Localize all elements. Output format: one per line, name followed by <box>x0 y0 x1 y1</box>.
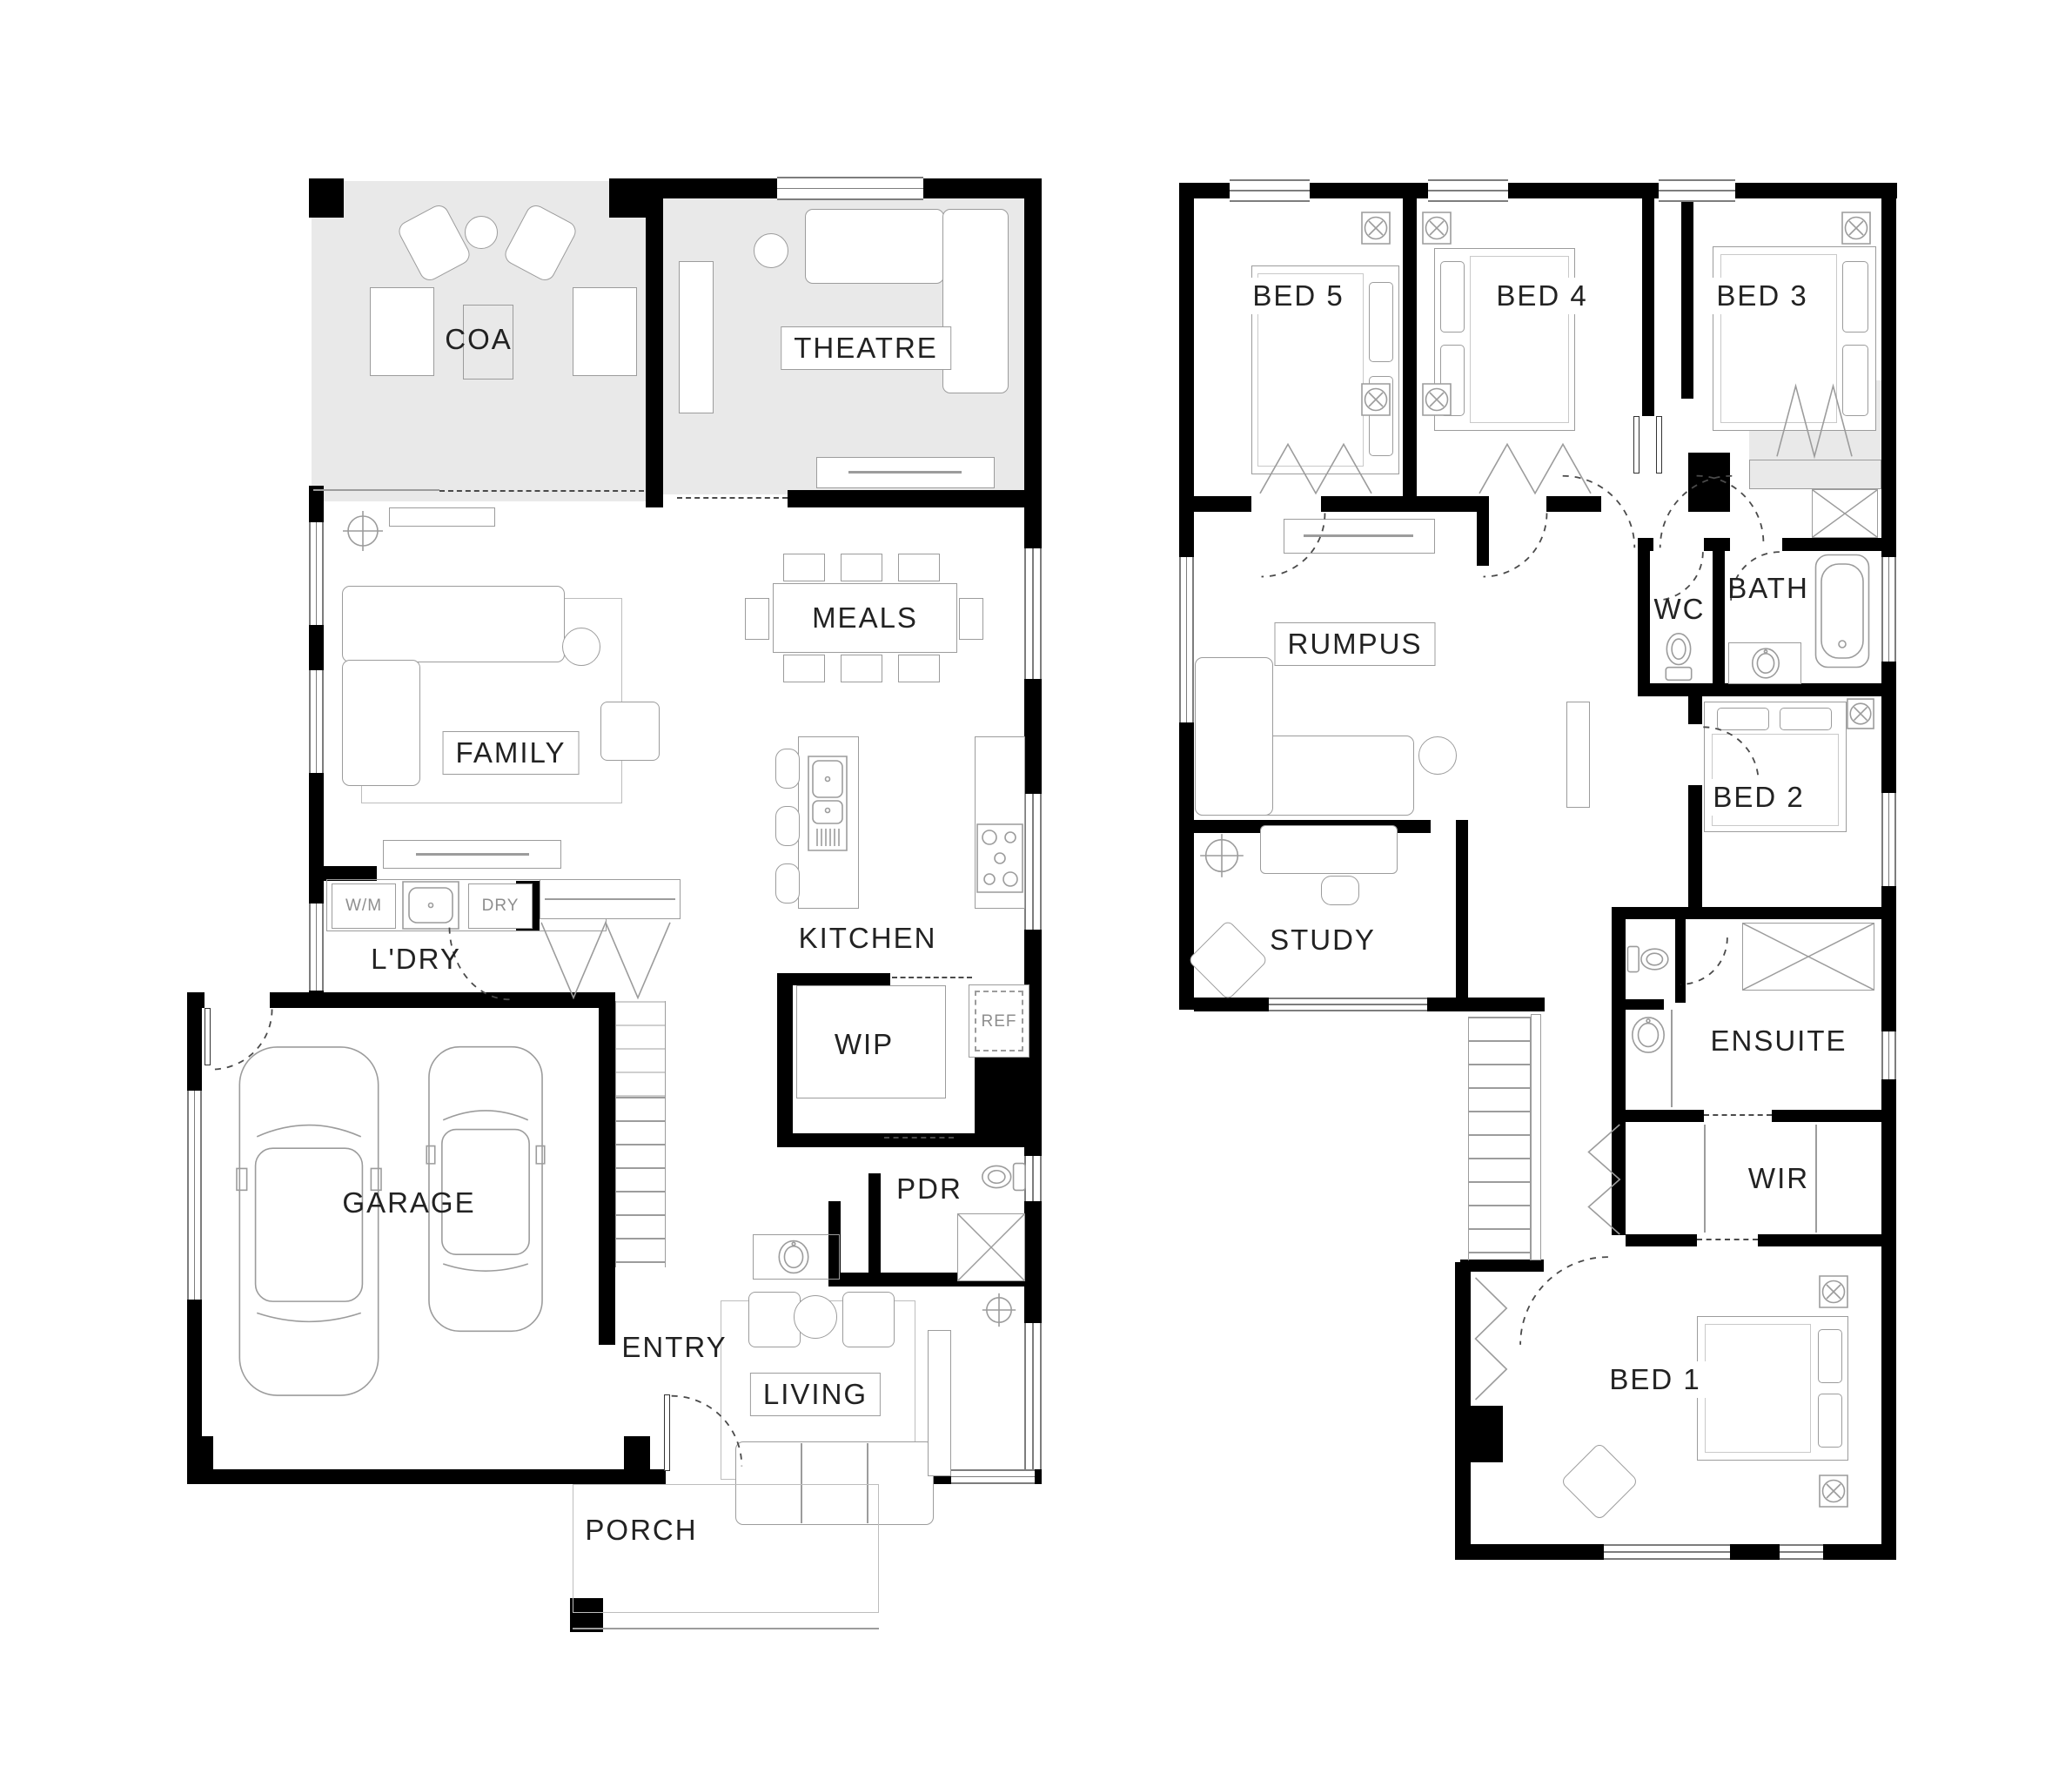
opening-dashed <box>884 1137 954 1139</box>
dining-chair <box>841 554 882 581</box>
opening-dashed <box>892 977 972 978</box>
side-table <box>754 233 788 268</box>
room-label-bed1: BED 1 <box>1602 1361 1707 1398</box>
wall <box>1024 178 1042 507</box>
room-label-bed2: BED 2 <box>1706 779 1811 816</box>
window <box>1230 179 1310 202</box>
theatre-chaise <box>942 209 1009 393</box>
armchair <box>1560 1442 1639 1522</box>
kitchen-sink-icon <box>808 756 848 851</box>
room-label-living: LIVING <box>750 1373 881 1416</box>
wall <box>1403 198 1417 496</box>
wall <box>1688 696 1702 724</box>
laundry-sink-icon <box>402 881 459 930</box>
room-label-bed5: BED 5 <box>1245 278 1351 314</box>
window <box>1659 179 1735 202</box>
armchair <box>748 1292 801 1347</box>
ceiling-fan-icon <box>1819 1475 1848 1508</box>
wall <box>1612 1110 1704 1122</box>
armchair <box>842 1292 895 1347</box>
wall <box>609 178 646 218</box>
door-swing-arc <box>670 1394 743 1468</box>
door-leaf <box>1633 416 1639 474</box>
armchair <box>573 287 637 376</box>
side-table <box>1418 736 1457 775</box>
window <box>1024 548 1042 679</box>
wall <box>187 1436 213 1484</box>
wall <box>1642 198 1654 416</box>
family-sofa-chaise <box>342 660 420 786</box>
wall <box>1782 538 1881 551</box>
door-leaf <box>1656 416 1662 474</box>
cavity-slider-dashed <box>677 497 788 499</box>
dining-chair <box>745 598 769 640</box>
floor-plan-sheet: COA THEATRE MEALS FAMILY L'DRY KITCHEN W… <box>0 0 2072 1787</box>
desk <box>1260 825 1398 874</box>
wall <box>1455 1406 1503 1462</box>
bed <box>1434 248 1575 431</box>
wall <box>1194 496 1251 512</box>
wall <box>1713 551 1725 688</box>
front-door-leaf <box>664 1394 670 1471</box>
wall <box>187 1469 650 1484</box>
room-label-wc: WC <box>1654 593 1706 626</box>
room-label-wip: WIP <box>835 1028 894 1061</box>
wall <box>1612 907 1881 919</box>
porch-step <box>573 1628 879 1629</box>
bar-stool <box>775 749 800 789</box>
cavity-slider-dashed <box>439 490 644 492</box>
window <box>1604 1544 1730 1560</box>
door-swing-arc <box>1680 937 1728 985</box>
wall <box>1758 1234 1881 1246</box>
window <box>1881 793 1896 886</box>
wall <box>648 1469 666 1484</box>
staircase <box>615 1097 666 1267</box>
ceiling-light-icon <box>982 1292 1016 1328</box>
sideboard <box>389 507 495 527</box>
wall <box>1638 683 1896 696</box>
door-swing-arc <box>1482 512 1548 578</box>
room-label-porch: PORCH <box>585 1514 697 1547</box>
window <box>951 1469 1035 1484</box>
window <box>187 1091 202 1300</box>
window <box>1881 1031 1896 1079</box>
wall <box>975 1053 1040 1136</box>
wall <box>868 1173 881 1281</box>
cooktop-icon <box>976 823 1023 893</box>
appliance-label-wm: W/M <box>345 897 382 916</box>
wall <box>1638 538 1650 696</box>
bifold-robe-doors-icon <box>541 921 670 1001</box>
window <box>309 670 324 773</box>
room-label-wir: WIR <box>1748 1162 1809 1195</box>
window <box>1780 1544 1823 1560</box>
car-icon <box>237 1043 381 1400</box>
family-sofa <box>342 586 565 662</box>
door-swing-arc <box>1260 512 1326 578</box>
garage-door-leaf <box>205 1008 211 1065</box>
wall <box>777 973 793 1140</box>
room-label-entry: ENTRY <box>621 1331 727 1364</box>
room-label-bed3: BED 3 <box>1709 278 1814 314</box>
wall <box>624 1436 650 1484</box>
soundbar <box>848 471 962 474</box>
soundbar <box>416 853 529 856</box>
dining-chair <box>841 655 882 682</box>
dining-chair <box>898 655 940 682</box>
room-label-bed4: BED 4 <box>1489 278 1594 314</box>
window <box>309 522 324 625</box>
room-label-bath: BATH <box>1727 572 1809 605</box>
dining-chair <box>898 554 940 581</box>
basin-icon <box>773 1238 815 1276</box>
rumpus-sofa-chaise <box>1195 657 1273 816</box>
door-swing-arc <box>1519 1255 1610 1347</box>
room-label-garage: GARAGE <box>342 1186 475 1219</box>
bed <box>1697 1316 1848 1461</box>
opening-dashed <box>1697 1239 1758 1240</box>
porch-outline <box>573 1484 879 1613</box>
side-table <box>562 628 600 666</box>
staircase <box>1468 1017 1531 1260</box>
toilet-icon <box>1624 942 1674 977</box>
wall <box>1456 820 1468 1010</box>
basin-icon <box>1629 1013 1667 1057</box>
dining-chair <box>783 655 825 682</box>
tv-cabinet <box>928 1330 951 1476</box>
wall <box>788 490 1042 507</box>
window <box>1428 179 1508 202</box>
room-label-family: FAMILY <box>443 731 580 775</box>
armchair <box>600 702 660 761</box>
ceiling-fan-icon <box>1841 212 1871 245</box>
armchair <box>1187 919 1268 1000</box>
appliance-label-ref: REF <box>982 1012 1017 1031</box>
door-swing-arc <box>1695 474 1765 544</box>
wall <box>1681 198 1693 399</box>
side-table <box>794 1295 837 1339</box>
window <box>1024 1323 1042 1469</box>
room-label-meals: MEALS <box>812 601 918 635</box>
toilet-icon <box>1660 628 1697 682</box>
wall <box>777 973 890 985</box>
window <box>1881 557 1896 662</box>
wardrobe-rail <box>1704 1125 1706 1233</box>
linen-cupboard <box>1812 489 1878 538</box>
window <box>777 177 923 200</box>
door-swing-arc <box>211 1008 273 1071</box>
window <box>1179 557 1194 722</box>
shower <box>1742 923 1874 991</box>
bar-stool <box>775 806 800 846</box>
wall <box>1688 785 1702 910</box>
appliance-label-dry: DRY <box>482 897 520 916</box>
door-swing-arc <box>1702 726 1760 783</box>
ceiling-light-icon <box>342 509 384 553</box>
room-label-ensuite: ENSUITE <box>1710 1025 1847 1058</box>
toilet-icon <box>978 1158 1027 1196</box>
wall <box>1321 496 1478 512</box>
ceiling-fan-icon <box>1819 1275 1848 1308</box>
wall <box>599 992 615 1345</box>
basin-icon <box>1747 646 1784 681</box>
ceiling-light-icon <box>1199 832 1244 879</box>
outdoor-table <box>465 216 498 249</box>
cupboard-line <box>545 898 675 900</box>
wall <box>1466 998 1545 1011</box>
dining-chair <box>783 554 825 581</box>
robe-shelf <box>1749 460 1881 489</box>
window-seat <box>679 261 714 413</box>
wall <box>646 178 663 507</box>
ceiling-fan-icon <box>1361 212 1391 245</box>
opening-dashed <box>1704 1114 1772 1116</box>
room-label-theatre: THEATRE <box>781 326 951 370</box>
shower <box>957 1213 1025 1281</box>
wall <box>1612 999 1664 1010</box>
window <box>1024 1156 1042 1201</box>
room-label-rumpus: RUMPUS <box>1274 622 1435 666</box>
desk-chair <box>1321 876 1359 905</box>
window <box>309 904 324 991</box>
room-label-kitchen: KITCHEN <box>799 922 937 955</box>
theatre-sofa <box>805 209 944 284</box>
ceiling-fan-icon <box>1361 383 1391 416</box>
room-label-coa: COA <box>445 323 513 356</box>
window <box>1269 998 1427 1011</box>
bifold-robe-doors-icon <box>1587 1125 1620 1234</box>
armchair <box>370 287 434 376</box>
staircase-upper-flight <box>615 1001 666 1097</box>
coa-edge-line <box>313 489 439 491</box>
vanity-edge <box>1671 1010 1673 1107</box>
ceiling-fan-icon <box>1847 698 1874 729</box>
ceiling-fan-icon <box>1422 212 1452 245</box>
wall <box>1455 1262 1471 1406</box>
bar-stool <box>775 863 800 904</box>
window <box>1024 794 1042 930</box>
wall <box>309 178 344 218</box>
bifold-robe-doors-icon <box>1751 383 1878 458</box>
dining-chair <box>959 598 983 640</box>
ceiling-fan-icon <box>1422 383 1452 416</box>
bifold-robe-doors-icon <box>1260 442 1371 494</box>
hall-console <box>1566 702 1590 808</box>
room-label-pdr: PDR <box>896 1172 962 1206</box>
room-label-ldry: L'DRY <box>371 943 461 976</box>
wall <box>1772 1110 1881 1122</box>
wall <box>1612 907 1626 1122</box>
wall <box>1626 1234 1697 1246</box>
bifold-robe-doors-icon <box>1474 1278 1507 1400</box>
stair-rail <box>1531 1014 1541 1260</box>
bathtub-icon <box>1814 554 1870 668</box>
room-label-study: STUDY <box>1270 924 1376 957</box>
wardrobe-rail <box>1815 1125 1817 1233</box>
door-swing-arc <box>1561 474 1636 549</box>
